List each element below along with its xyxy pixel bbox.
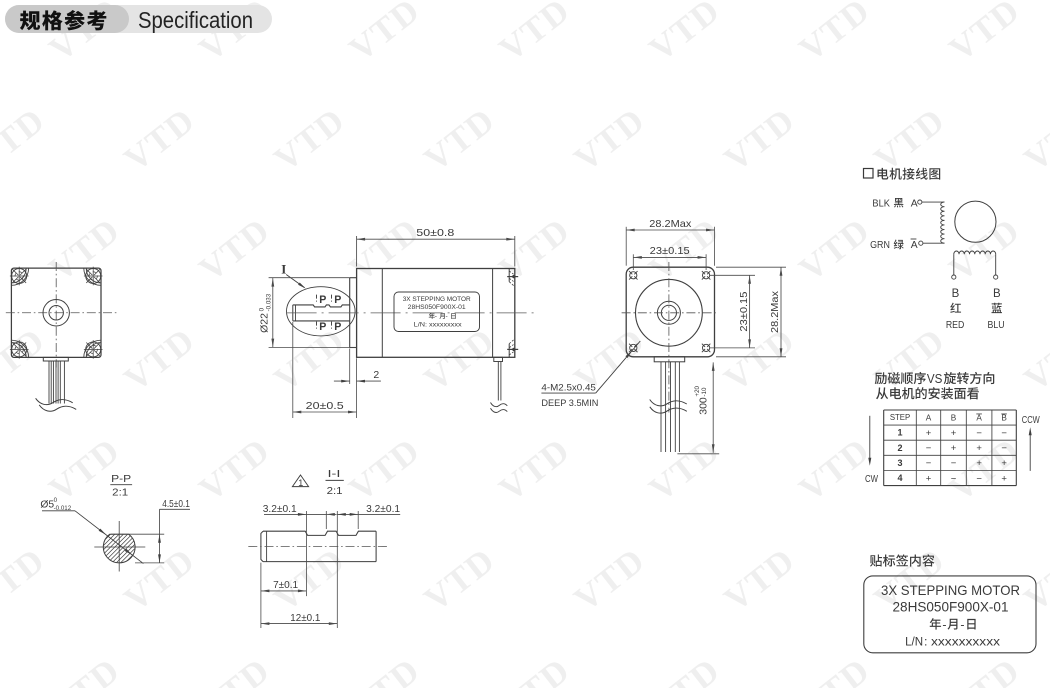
svg-text:VTD: VTD xyxy=(1017,540,1050,619)
svg-text:VTD: VTD xyxy=(642,650,728,688)
svg-text:VTD: VTD xyxy=(567,100,653,179)
svg-text:28HS050F900X-01: 28HS050F900X-01 xyxy=(893,598,1009,614)
svg-text:VTD: VTD xyxy=(1017,320,1050,399)
svg-text:+: + xyxy=(976,443,982,454)
svg-text:B: B xyxy=(1001,413,1007,422)
svg-text:B: B xyxy=(993,288,1001,300)
svg-text:A: A xyxy=(911,198,918,209)
svg-text:L/N: L/N xyxy=(905,635,923,649)
svg-text:VTD: VTD xyxy=(192,210,278,289)
svg-text:VTD: VTD xyxy=(642,430,728,509)
svg-text:-: - xyxy=(942,617,946,631)
svg-text:A: A xyxy=(926,413,932,422)
svg-text:+: + xyxy=(976,458,982,469)
svg-text:-0.033: -0.033 xyxy=(266,293,273,311)
svg-text:2:1: 2:1 xyxy=(327,486,343,497)
svg-text:VTD: VTD xyxy=(492,650,578,688)
svg-text:VTD: VTD xyxy=(417,100,503,179)
svg-text:12±0.1: 12±0.1 xyxy=(290,613,320,624)
svg-text:VTD: VTD xyxy=(417,540,503,619)
svg-text:23±0.15: 23±0.15 xyxy=(738,291,750,331)
svg-text::: : xyxy=(924,635,927,649)
svg-text:3X STEPPING MOTOR: 3X STEPPING MOTOR xyxy=(403,296,471,303)
svg-text:VTD: VTD xyxy=(1017,100,1050,179)
svg-text:4: 4 xyxy=(897,473,902,483)
svg-text:VTD: VTD xyxy=(192,650,278,688)
svg-text:GRN: GRN xyxy=(870,240,890,251)
svg-text:VTD: VTD xyxy=(792,210,878,289)
svg-text:VTD: VTD xyxy=(717,100,803,179)
svg-text:−: − xyxy=(951,458,957,469)
svg-text:4.5±0.1: 4.5±0.1 xyxy=(162,499,190,510)
svg-text:VTD: VTD xyxy=(0,320,53,399)
svg-text:VTD: VTD xyxy=(717,320,803,399)
svg-text:VTD: VTD xyxy=(567,540,653,619)
svg-text:−: − xyxy=(1001,443,1007,454)
svg-text:+: + xyxy=(1001,458,1007,469)
svg-text:P-P: P-P xyxy=(111,474,131,485)
svg-text:VTD: VTD xyxy=(42,210,128,289)
svg-text:−: − xyxy=(976,428,982,439)
svg-text:VTD: VTD xyxy=(792,430,878,509)
svg-text:28.2Max: 28.2Max xyxy=(769,290,781,333)
svg-text:VTD: VTD xyxy=(492,210,578,289)
svg-text:28HS050F900X-01: 28HS050F900X-01 xyxy=(408,304,466,311)
svg-text:P: P xyxy=(334,321,341,333)
svg-text:VTD: VTD xyxy=(867,320,953,399)
svg-text:VTD: VTD xyxy=(492,0,578,69)
svg-text:A: A xyxy=(976,413,982,422)
svg-text:1: 1 xyxy=(298,478,303,488)
svg-text:4-M2.5x0.45: 4-M2.5x0.45 xyxy=(541,383,596,393)
svg-text:RED: RED xyxy=(946,320,965,331)
svg-text:+: + xyxy=(1001,473,1007,484)
svg-text:−: − xyxy=(951,473,957,484)
svg-text:3.2±0.1: 3.2±0.1 xyxy=(263,504,297,515)
svg-text:A: A xyxy=(911,240,918,251)
svg-text:CW: CW xyxy=(865,474,878,485)
svg-text:+: + xyxy=(951,428,957,439)
svg-text:B: B xyxy=(951,413,957,422)
svg-text:−: − xyxy=(1001,428,1007,439)
svg-text:VTD: VTD xyxy=(42,650,128,688)
svg-text:2: 2 xyxy=(373,369,379,381)
svg-text:xxxxxxxxxx: xxxxxxxxxx xyxy=(931,635,1001,649)
svg-text:3.2±0.1: 3.2±0.1 xyxy=(366,504,400,515)
svg-text:STEP: STEP xyxy=(890,413,910,422)
svg-text:Ø22: Ø22 xyxy=(259,313,271,333)
svg-text:VTD: VTD xyxy=(942,650,1028,688)
svg-text:20±0.5: 20±0.5 xyxy=(306,400,344,412)
svg-text:-: - xyxy=(960,617,964,631)
svg-text:I-I: I-I xyxy=(328,469,341,480)
svg-text:VTD: VTD xyxy=(792,650,878,688)
svg-text:BLU: BLU xyxy=(988,320,1005,331)
svg-text:VTD: VTD xyxy=(642,0,728,69)
svg-text:+: + xyxy=(951,443,957,454)
svg-text:3X STEPPING MOTOR: 3X STEPPING MOTOR xyxy=(881,582,1020,598)
svg-text:DEEP 3.5MIN: DEEP 3.5MIN xyxy=(541,398,598,408)
svg-text:2: 2 xyxy=(897,443,902,453)
svg-text:VTD: VTD xyxy=(0,100,53,179)
svg-text:+: + xyxy=(926,428,932,439)
svg-text:VTD: VTD xyxy=(792,0,878,69)
svg-text:−: − xyxy=(926,443,932,454)
svg-text:VTD: VTD xyxy=(867,100,953,179)
svg-text:−: − xyxy=(926,458,932,469)
svg-text:B: B xyxy=(952,288,960,300)
svg-text:−: − xyxy=(976,473,982,484)
svg-text:1: 1 xyxy=(897,428,902,438)
svg-text:-10: -10 xyxy=(701,387,708,397)
svg-text:VTD: VTD xyxy=(267,100,353,179)
svg-text:P: P xyxy=(319,294,326,306)
svg-text:VTD: VTD xyxy=(492,430,578,509)
svg-text:BLK: BLK xyxy=(872,198,890,209)
svg-text:23±0.15: 23±0.15 xyxy=(650,245,690,257)
svg-text:2:1: 2:1 xyxy=(112,487,128,498)
svg-text:300: 300 xyxy=(698,397,710,415)
svg-text:VTD: VTD xyxy=(342,0,428,69)
svg-text:CCW: CCW xyxy=(1022,415,1040,426)
svg-text:VTD: VTD xyxy=(342,650,428,688)
svg-text:+: + xyxy=(926,473,932,484)
svg-text:VS: VS xyxy=(927,372,943,386)
svg-text:0: 0 xyxy=(54,497,58,504)
svg-text:VTD: VTD xyxy=(342,430,428,509)
svg-text:7±0.1: 7±0.1 xyxy=(273,580,298,591)
svg-text:-: - xyxy=(435,313,437,320)
svg-text:VTD: VTD xyxy=(0,540,53,619)
svg-text:I: I xyxy=(281,261,286,276)
svg-text:L/N: xxxxxxxxx: L/N: xxxxxxxxx xyxy=(414,321,463,328)
svg-text:VTD: VTD xyxy=(117,100,203,179)
svg-text:VTD: VTD xyxy=(942,0,1028,69)
svg-text:Ø5: Ø5 xyxy=(40,500,54,511)
svg-text:VTD: VTD xyxy=(192,430,278,509)
svg-text:VTD: VTD xyxy=(117,320,203,399)
svg-text:P: P xyxy=(334,294,341,306)
svg-text:VTD: VTD xyxy=(717,540,803,619)
svg-text:3: 3 xyxy=(897,458,902,468)
svg-text:Specification: Specification xyxy=(138,7,253,33)
svg-text:-: - xyxy=(445,313,447,320)
svg-text:50±0.8: 50±0.8 xyxy=(416,227,454,239)
svg-text:28.2Max: 28.2Max xyxy=(649,218,692,230)
svg-text:P: P xyxy=(319,321,326,333)
